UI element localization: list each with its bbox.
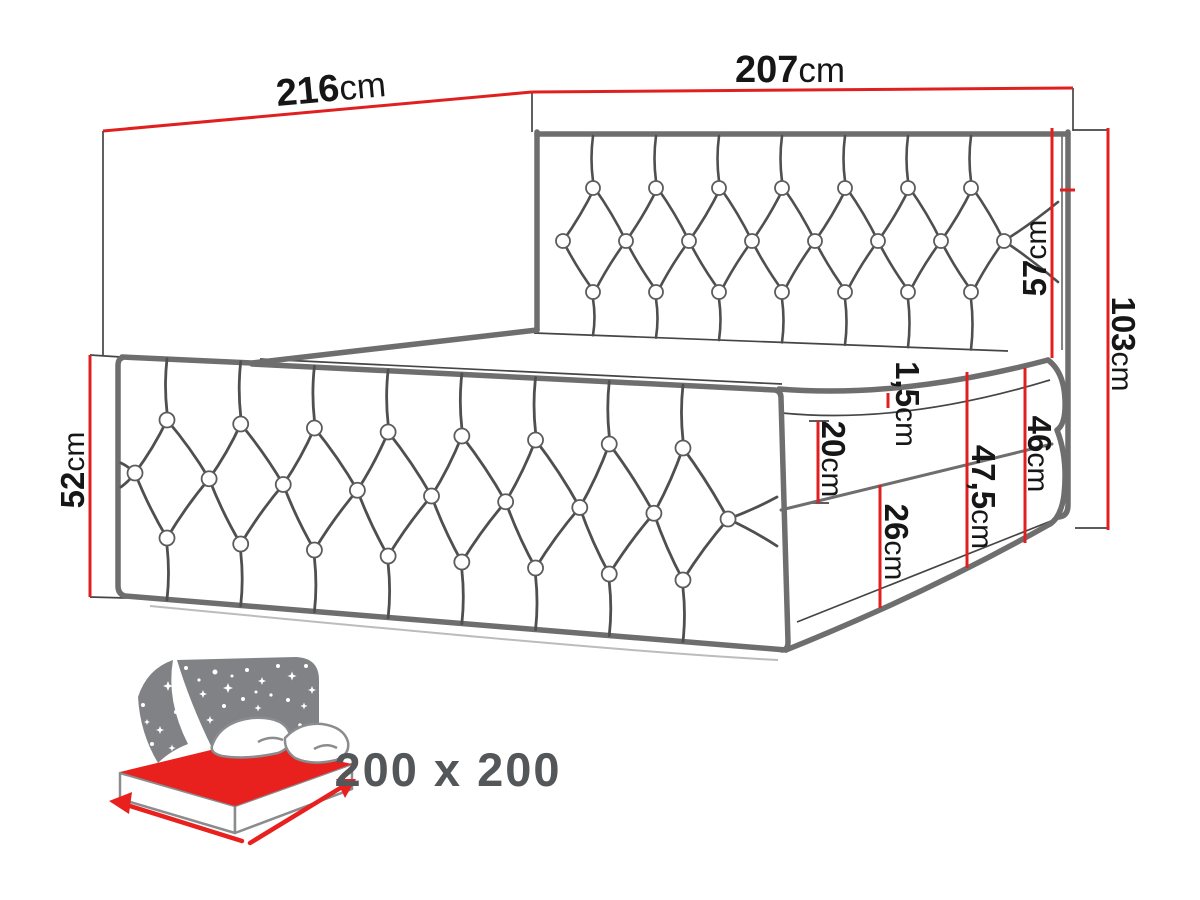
- size-badge: 200 x 200: [334, 743, 561, 796]
- dimension-label-20: 20cm: [815, 421, 852, 498]
- dimension-label-46: 46cm: [1021, 416, 1058, 493]
- dimension-label-57: 57cm: [1016, 220, 1053, 297]
- icon-headboard-band: [138, 660, 188, 763]
- dimension-label-26: 26cm: [878, 504, 915, 581]
- dimension-lines: [90, 88, 1108, 608]
- side-panel-tufting: [121, 359, 777, 642]
- base-bottom-right-edge: [786, 524, 1050, 650]
- dimension-label-52: 52cm: [54, 432, 91, 509]
- mattress-left-edge: [122, 330, 537, 363]
- dimension-label-207: 207cm: [735, 49, 845, 91]
- bed-size-icon: [109, 657, 356, 843]
- bed-dimensions-diagram: 216cm 207cm 52cm 57cm 103cm 1,5cm 20cm 4…: [0, 0, 1200, 900]
- side-panel-top-right: [252, 364, 788, 650]
- dimension-label-103: 103cm: [1105, 296, 1142, 391]
- side-panel-left-bottom: [118, 358, 786, 650]
- dimension-label-47-5: 47,5cm: [965, 445, 1002, 549]
- diagram-canvas: 216cm 207cm 52cm 57cm 103cm 1,5cm 20cm 4…: [0, 0, 1200, 900]
- dimension-label-1-5: 1,5cm: [889, 361, 926, 447]
